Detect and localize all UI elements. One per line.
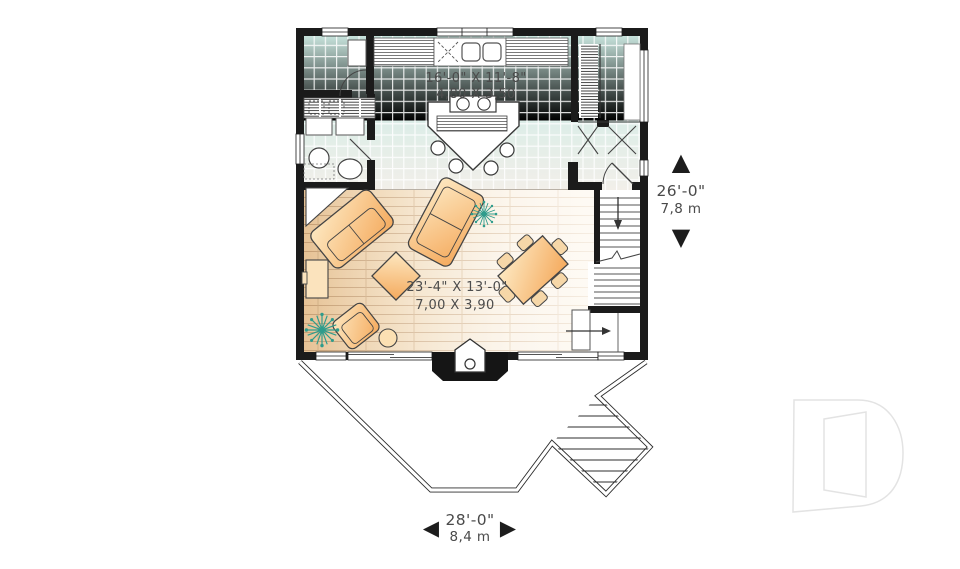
ottoman: [379, 329, 397, 347]
laundry-area: [304, 98, 375, 135]
width-metric: 8,4 m: [450, 529, 491, 545]
sink-basin: [462, 43, 480, 61]
window: [322, 28, 348, 36]
stool: [484, 161, 498, 175]
stool: [449, 159, 463, 173]
depth-imperial: 26'-0": [657, 182, 706, 200]
deck: [300, 362, 662, 494]
living-size-imperial: 23'-4" X 13'-0": [406, 280, 507, 295]
closet-shelf: [624, 44, 640, 120]
window: [437, 28, 513, 36]
stool: [500, 143, 514, 157]
console-table: [302, 260, 328, 298]
patio-door: [348, 352, 432, 360]
living-size-metric: 7,00 X 3,90: [415, 298, 494, 313]
window: [640, 160, 648, 176]
window: [296, 134, 304, 164]
understair-closet: [572, 310, 590, 350]
hanging-rod: [579, 44, 598, 118]
stool: [431, 141, 445, 155]
drummond-logo-watermark: [793, 400, 903, 512]
island-bar: [437, 116, 507, 131]
sink-basin: [483, 43, 501, 61]
up-arrow-icon: ▲: [672, 148, 691, 176]
kitchen-size-imperial: 16'-0" X 11'-8": [425, 71, 526, 86]
toilet: [338, 159, 362, 179]
kitchen-size-label: 16'-0" X 11'-8" 4,80 X 3,50: [425, 71, 526, 102]
width-imperial: 28'-0": [446, 511, 495, 529]
dimension-depth: ▲ 26'-0" 7,8 m ▼: [657, 148, 706, 251]
dimension-width: ◀ 28'-0" 8,4 m ▶: [423, 511, 517, 545]
sink: [309, 148, 329, 168]
window: [640, 50, 648, 122]
floor-plan: 16'-0" X 11'-8" 4,80 X 3,50 23'-4" X 13'…: [0, 0, 960, 569]
depth-metric: 7,8 m: [661, 201, 702, 217]
dryer: [336, 118, 364, 135]
patio-door: [518, 352, 598, 360]
right-arrow-icon: ▶: [500, 516, 517, 540]
down-arrow-icon: ▼: [672, 223, 691, 251]
fridge: [348, 40, 366, 66]
washer: [306, 118, 332, 135]
window: [598, 352, 624, 360]
window: [316, 352, 346, 360]
kitchen-size-metric: 4,80 X 3,50: [436, 87, 515, 102]
left-arrow-icon: ◀: [423, 516, 440, 540]
kitchen-counter: [374, 38, 568, 66]
window: [596, 28, 622, 36]
floor-plan-page: 16'-0" X 11'-8" 4,80 X 3,50 23'-4" X 13'…: [0, 0, 960, 569]
